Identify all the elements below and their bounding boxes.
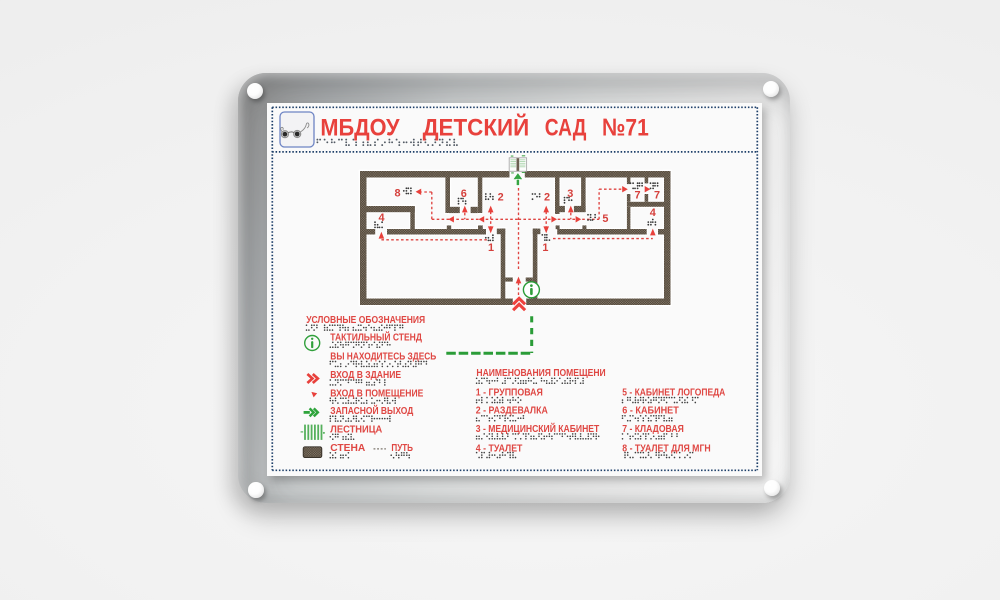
- svg-text:4 - ТУАЛЕТ: 4 - ТУАЛЕТ: [476, 443, 523, 454]
- svg-text:САД: САД: [545, 114, 587, 141]
- svg-text:8: 8: [394, 187, 400, 199]
- svg-text:3: 3: [567, 188, 573, 200]
- svg-text:ВХОД В ЗДАНИЕ: ВХОД В ЗДАНИЕ: [330, 370, 401, 381]
- svg-text:УСЛОВНЫЕ ОБОЗНАЧЕНИЯ: УСЛОВНЫЕ ОБОЗНАЧЕНИЯ: [306, 315, 425, 326]
- svg-text:2 - РАЗДЕВАЛКА: 2 - РАЗДЕВАЛКА: [476, 406, 548, 417]
- svg-text:1 - ГРУППОВАЯ: 1 - ГРУППОВАЯ: [476, 387, 543, 398]
- svg-text:6 - КАБИНЕТ: 6 - КАБИНЕТ: [622, 406, 679, 417]
- svg-text:№71: №71: [602, 114, 649, 141]
- svg-text:ЗАПАСНОЙ ВЫХОД: ЗАПАСНОЙ ВЫХОД: [330, 404, 414, 417]
- svg-text:1: 1: [488, 242, 494, 254]
- svg-text:1: 1: [542, 242, 548, 254]
- svg-text:5: 5: [602, 213, 608, 225]
- svg-text:ТАКТИЛЬНЫЙ СТЕНД: ТАКТИЛЬНЫЙ СТЕНД: [330, 331, 422, 344]
- svg-text:8 - ТУАЛЕТ ДЛЯ МГН: 8 - ТУАЛЕТ ДЛЯ МГН: [622, 443, 710, 454]
- svg-text:5 - КАБИНЕТ ЛОГОПЕДА: 5 - КАБИНЕТ ЛОГОПЕДА: [622, 387, 725, 398]
- svg-text:ЛЕСТНИЦА: ЛЕСТНИЦА: [330, 425, 383, 436]
- svg-text:2: 2: [544, 192, 550, 204]
- svg-text:ВЫ НАХОДИТЕСЬ ЗДЕСЬ: ВЫ НАХОДИТЕСЬ ЗДЕСЬ: [330, 352, 436, 363]
- svg-text:СТЕНА: СТЕНА: [330, 443, 366, 454]
- svg-text:МБДОУ: МБДОУ: [320, 114, 400, 141]
- svg-text:7: 7: [634, 189, 640, 201]
- svg-text:НАИМЕНОВАНИЯ ПОМЕЩЕНИ: НАИМЕНОВАНИЯ ПОМЕЩЕНИ: [476, 368, 605, 379]
- svg-text:7: 7: [654, 189, 660, 201]
- svg-text:ПУТЬ: ПУТЬ: [391, 443, 413, 454]
- svg-text:4: 4: [650, 207, 656, 219]
- svg-text:2: 2: [498, 192, 504, 204]
- svg-text:3 - МЕДИЦИНСКИЙ КАБИНЕТ: 3 - МЕДИЦИНСКИЙ КАБИНЕТ: [476, 422, 600, 435]
- svg-text:7 - КЛАДОВАЯ: 7 - КЛАДОВАЯ: [622, 424, 684, 435]
- svg-text:ДЕТСКИЙ: ДЕТСКИЙ: [423, 113, 530, 141]
- svg-text:ВХОД В ПОМЕЩЕНИЕ: ВХОД В ПОМЕЩЕНИЕ: [330, 388, 423, 399]
